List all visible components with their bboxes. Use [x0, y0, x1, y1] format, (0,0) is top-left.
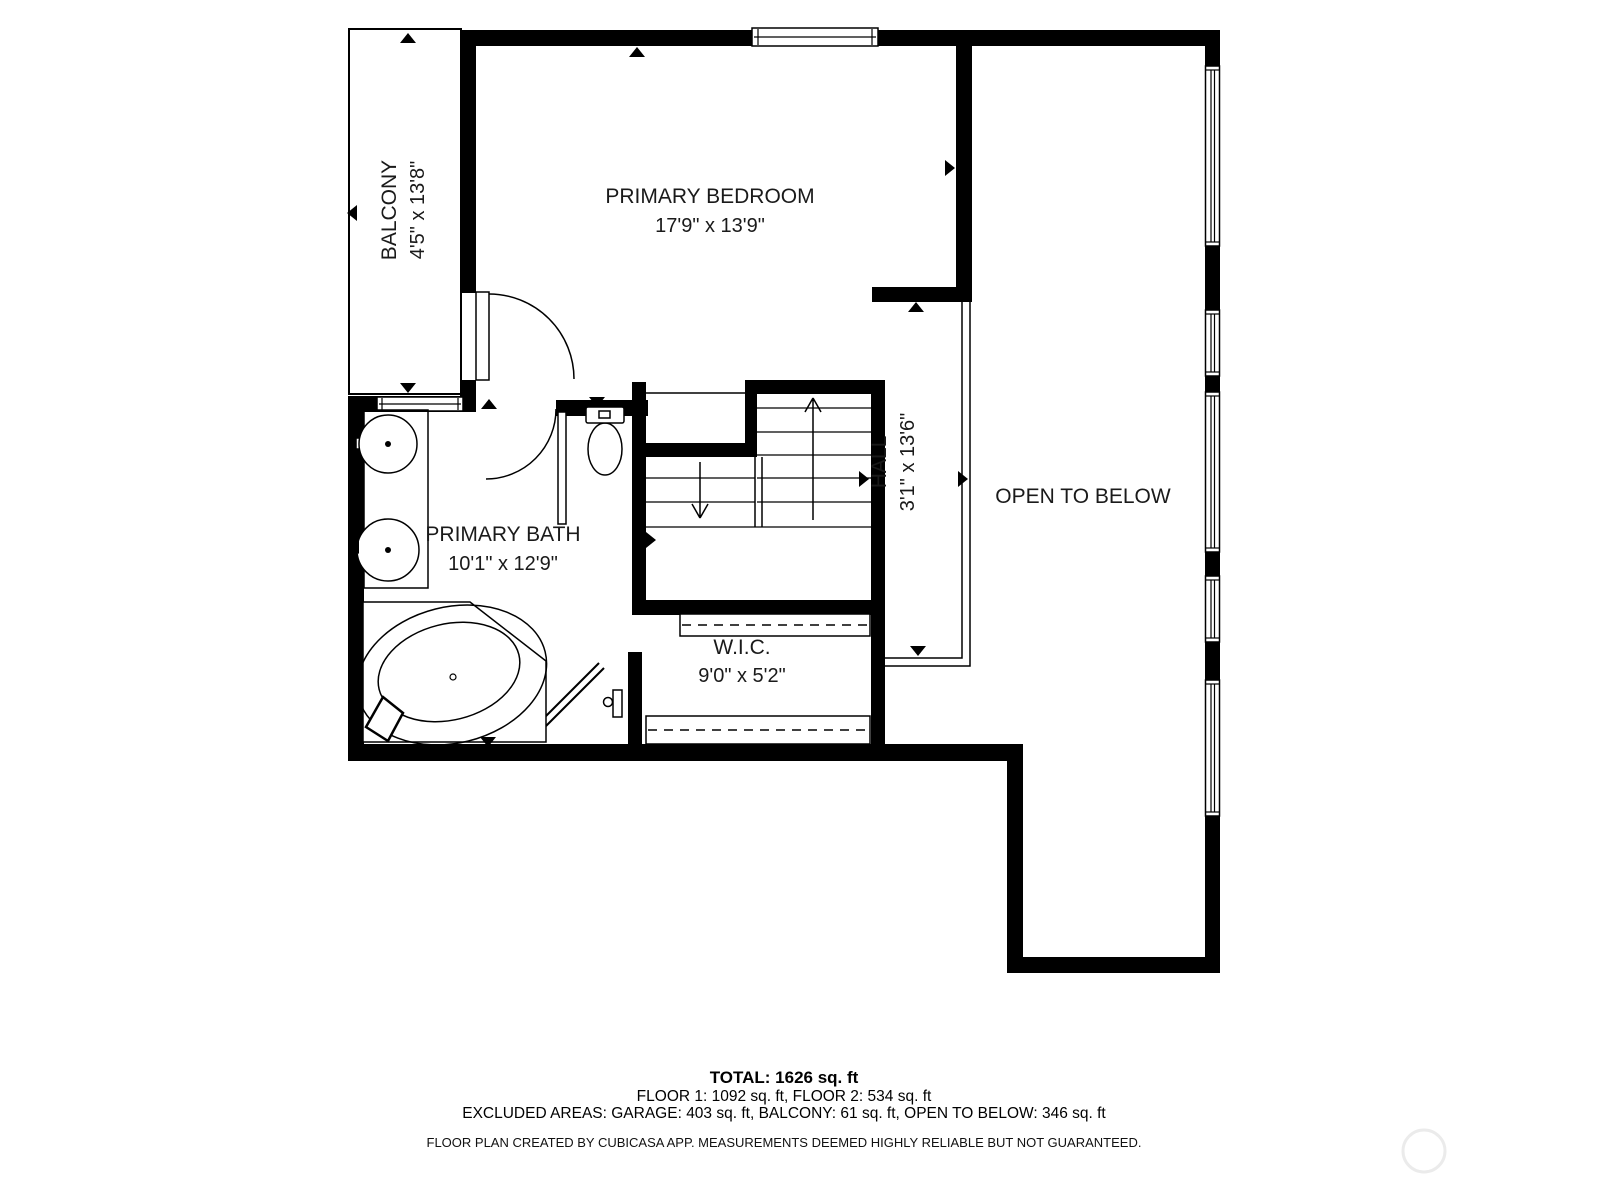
- wall-stairs-top: [745, 380, 885, 394]
- floor-areas-text: FLOOR 1: 1092 sq. ft, FLOOR 2: 534 sq. f…: [637, 1088, 932, 1105]
- sink-1-icon: [356, 415, 417, 473]
- wall-stairs-divider: [645, 443, 757, 457]
- closet-rail-bottom: [646, 716, 870, 744]
- wall-wic-left: [628, 652, 642, 760]
- right-window-3-icon: [1206, 392, 1220, 552]
- balcony-label: BALCONY: [378, 160, 401, 260]
- hall-dims: 3'1" x 13'6": [897, 413, 919, 512]
- bath-door-icon: [486, 409, 556, 479]
- bath-window-icon: [377, 397, 463, 411]
- bath-fixtures: [342, 407, 624, 764]
- wall-bottom-left-section: [348, 744, 1023, 761]
- area-summary: TOTAL: 1626 sq. ft FLOOR 1: 1092 sq. ft,…: [427, 1068, 1142, 1150]
- cubicasa-watermark-icon: [1403, 1130, 1445, 1172]
- wic-dims: 9'0" x 5'2": [698, 665, 785, 687]
- open-to-below-railing: [880, 302, 970, 666]
- stairs-down-arrow-icon: [692, 462, 708, 518]
- wic-label: W.I.C.: [713, 636, 770, 659]
- excluded-areas-text: EXCLUDED AREAS: GARAGE: 403 sq. ft, BALC…: [462, 1105, 1106, 1122]
- balcony-outline: [349, 29, 461, 394]
- shower-partition: [558, 412, 566, 524]
- floor-plan-page: PRIMARY BEDROOM 17'9" x 13'9" BALCONY 4'…: [0, 0, 1600, 1200]
- wall-bottom-right: [1007, 957, 1220, 973]
- right-window-5-icon: [1206, 680, 1220, 816]
- primary-bedroom-dims: 17'9" x 13'9": [655, 215, 765, 237]
- wall-bedroom-right: [956, 30, 972, 302]
- wall-bedroom-hall-stub: [872, 287, 972, 302]
- primary-bath-dims: 10'1" x 12'9": [448, 553, 558, 575]
- bathtub-icon: [342, 586, 561, 764]
- total-area-text: TOTAL: 1626 sq. ft: [710, 1068, 859, 1087]
- wall-bedroom-left: [460, 30, 476, 293]
- closet-rail-top: [680, 614, 870, 636]
- right-window-4-icon: [1206, 576, 1220, 642]
- primary-bath-label: PRIMARY BATH: [425, 523, 580, 546]
- toilet-icon: [586, 407, 624, 475]
- disclaimer-text: FLOOR PLAN CREATED BY CUBICASA APP. MEAS…: [427, 1135, 1142, 1150]
- wall-stairs-left: [632, 382, 646, 608]
- right-window-2-icon: [1206, 310, 1220, 376]
- bedroom-window-icon: [752, 28, 878, 46]
- staircase: [646, 393, 871, 527]
- floor-plan-drawing: PRIMARY BEDROOM 17'9" x 13'9" BALCONY 4'…: [0, 0, 1600, 1200]
- wic-door-icon: [541, 663, 622, 726]
- bedroom-door-icon: [476, 292, 574, 380]
- hall-label: HALL: [868, 436, 891, 489]
- right-window-1-icon: [1206, 66, 1220, 246]
- sink-2-icon: [356, 519, 419, 581]
- balcony-dims: 4'5" x 13'8": [407, 161, 429, 260]
- primary-bedroom-label: PRIMARY BEDROOM: [605, 185, 814, 208]
- wall-lower-vertical: [1007, 744, 1023, 973]
- open-to-below-label: OPEN TO BELOW: [995, 485, 1171, 508]
